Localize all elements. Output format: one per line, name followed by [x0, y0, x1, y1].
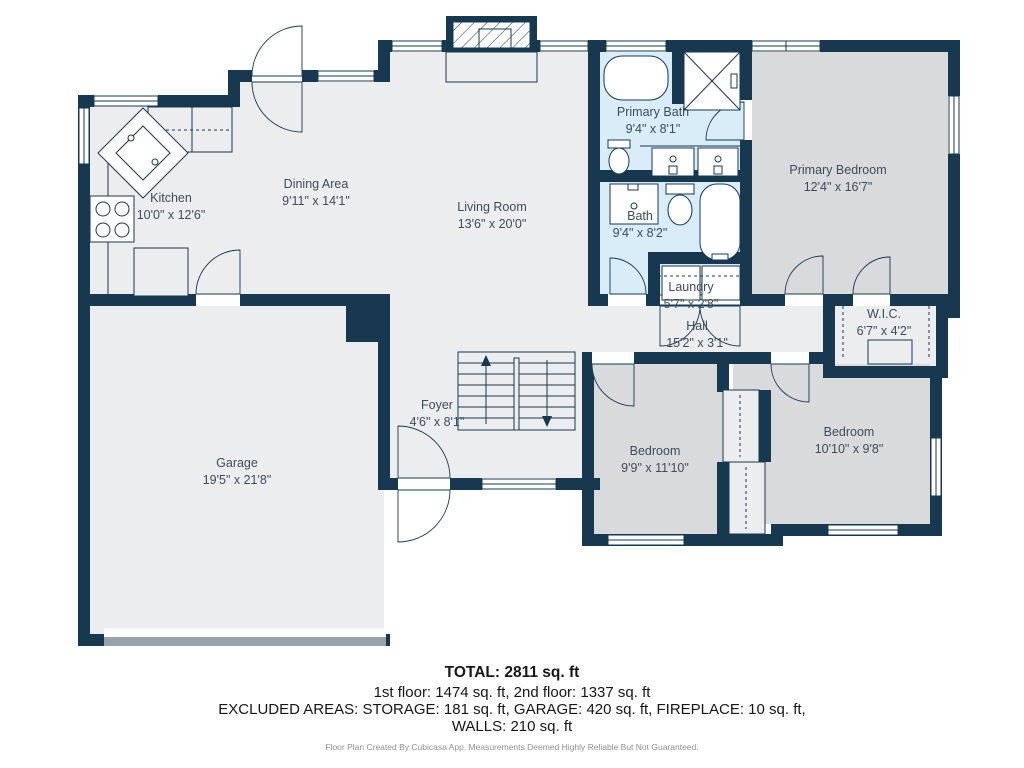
room-label-kitchen: Kitchen 10'0" x 12'6" — [137, 190, 206, 223]
room-label-hall: Hall 15'2" x 3'1" — [666, 318, 728, 351]
room-label-dining-area: Dining Area 9'11" x 14'1" — [282, 176, 350, 209]
summary-total: TOTAL: 2811 sq. ft — [0, 664, 1024, 682]
room-name: Bedroom — [621, 443, 689, 460]
room-label-bath: Bath 9'4" x 8'2" — [613, 208, 668, 241]
floors — [90, 52, 948, 634]
kitchen-cabinet — [134, 248, 188, 296]
room-name: Bedroom — [815, 424, 884, 441]
dining-patio-door-out — [252, 26, 302, 76]
room-label-foyer: Foyer 4'6" x 8'1" — [410, 397, 465, 430]
fireplace — [446, 16, 537, 82]
room-dims: 13'6" x 20'0" — [457, 216, 526, 233]
room-dims: 15'2" x 3'1" — [666, 335, 728, 352]
toilet-icon — [608, 140, 630, 174]
room-label-bedroom-2: Bedroom 10'10" x 9'8" — [815, 424, 884, 457]
room-dims: 12'4" x 16'7" — [789, 179, 886, 196]
stove-icon — [90, 196, 134, 242]
room-label-bedroom-1: Bedroom 9'9" x 11'10" — [621, 443, 689, 476]
room-dims: 19'5" x 21'8" — [203, 472, 272, 489]
room-name: Foyer — [410, 397, 465, 414]
room-label-primary-bedroom: Primary Bedroom 12'4" x 16'7" — [789, 162, 886, 195]
room-dims: 10'10" x 9'8" — [815, 441, 884, 458]
bathtub-icon — [700, 184, 740, 260]
summary-disclaimer: Floor Plan Created By Cubicasa App. Meas… — [0, 742, 1024, 752]
summary-walls: WALLS: 210 sq. ft — [0, 718, 1024, 735]
summary-floors: 1st floor: 1474 sq. ft, 2nd floor: 1337 … — [0, 684, 1024, 701]
room-name: Hall — [666, 318, 728, 335]
floor-plan-svg — [0, 0, 1024, 768]
room-name: Living Room — [457, 199, 526, 216]
front-door-out — [398, 490, 450, 542]
room-name: Primary Bedroom — [789, 162, 886, 179]
sink-icon — [652, 148, 694, 176]
room-dims: 9'11" x 14'1" — [282, 193, 350, 210]
room-dims: 10'0" x 12'6" — [137, 207, 206, 224]
room-label-garage: Garage 19'5" x 21'8" — [203, 455, 272, 488]
room-name: Laundry — [664, 279, 719, 296]
bedroom-closets — [723, 390, 765, 534]
room-dims: 9'4" x 8'2" — [613, 225, 668, 242]
room-name: W.I.C. — [857, 306, 912, 323]
room-label-wic: W.I.C. 6'7" x 4'2" — [857, 306, 912, 339]
room-name: Garage — [203, 455, 272, 472]
room-dims: 6'7" x 4'2" — [857, 323, 912, 340]
room-label-living-room: Living Room 13'6" x 20'0" — [457, 199, 526, 232]
room-name: Kitchen — [137, 190, 206, 207]
storage-block — [346, 306, 384, 342]
room-dims: 9'4" x 8'1" — [617, 121, 689, 138]
room-label-primary-bath: Primary Bath 9'4" x 8'1" — [617, 104, 689, 137]
room-name: Dining Area — [282, 176, 350, 193]
garage-door — [104, 628, 386, 646]
room-dims: 9'9" x 11'10" — [621, 460, 689, 477]
shower-icon — [684, 52, 740, 110]
sink-icon — [698, 148, 738, 176]
room-label-laundry: Laundry 5'7" x 2'8" — [664, 279, 719, 312]
bathtub-icon — [604, 56, 668, 100]
room-name: Bath — [613, 208, 668, 225]
hearth — [446, 52, 537, 82]
room-dims: 4'6" x 8'1" — [410, 414, 465, 431]
toilet-icon — [666, 184, 694, 225]
summary-excluded-areas: EXCLUDED AREAS: STORAGE: 181 sq. ft, GAR… — [0, 701, 1024, 718]
room-dims: 5'7" x 2'8" — [664, 296, 719, 313]
floor-plan: Kitchen 10'0" x 12'6" Dining Area 9'11" … — [0, 0, 1024, 768]
room-name: Primary Bath — [617, 104, 689, 121]
